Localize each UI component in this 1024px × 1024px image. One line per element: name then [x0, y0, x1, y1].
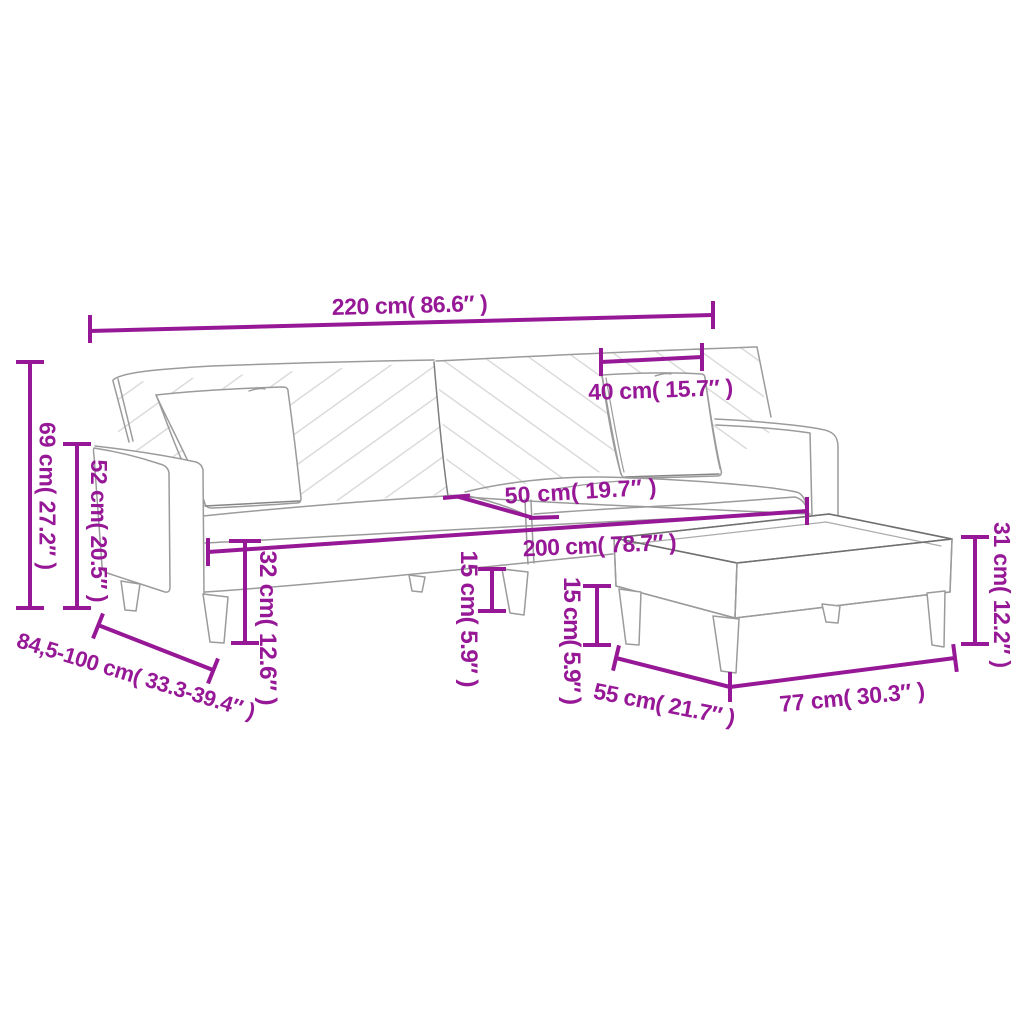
svg-text:220 cm( 86.6″ ): 220 cm( 86.6″ ): [331, 290, 488, 320]
svg-text:40 cm( 15.7″ ): 40 cm( 15.7″ ): [588, 374, 734, 405]
svg-text:69 cm( 27.2″ ): 69 cm( 27.2″ ): [35, 422, 61, 570]
svg-text:15 cm( 5.9″ ): 15 cm( 5.9″ ): [455, 551, 482, 688]
svg-text:52 cm( 20.5″ ): 52 cm( 20.5″ ): [86, 460, 112, 603]
svg-text:15 cm( 5.9″ ): 15 cm( 5.9″ ): [558, 577, 585, 705]
svg-text:31 cm( 12.2″ ): 31 cm( 12.2″ ): [989, 522, 1015, 668]
svg-text:32 cm( 12.6″ ): 32 cm( 12.6″ ): [254, 551, 281, 706]
